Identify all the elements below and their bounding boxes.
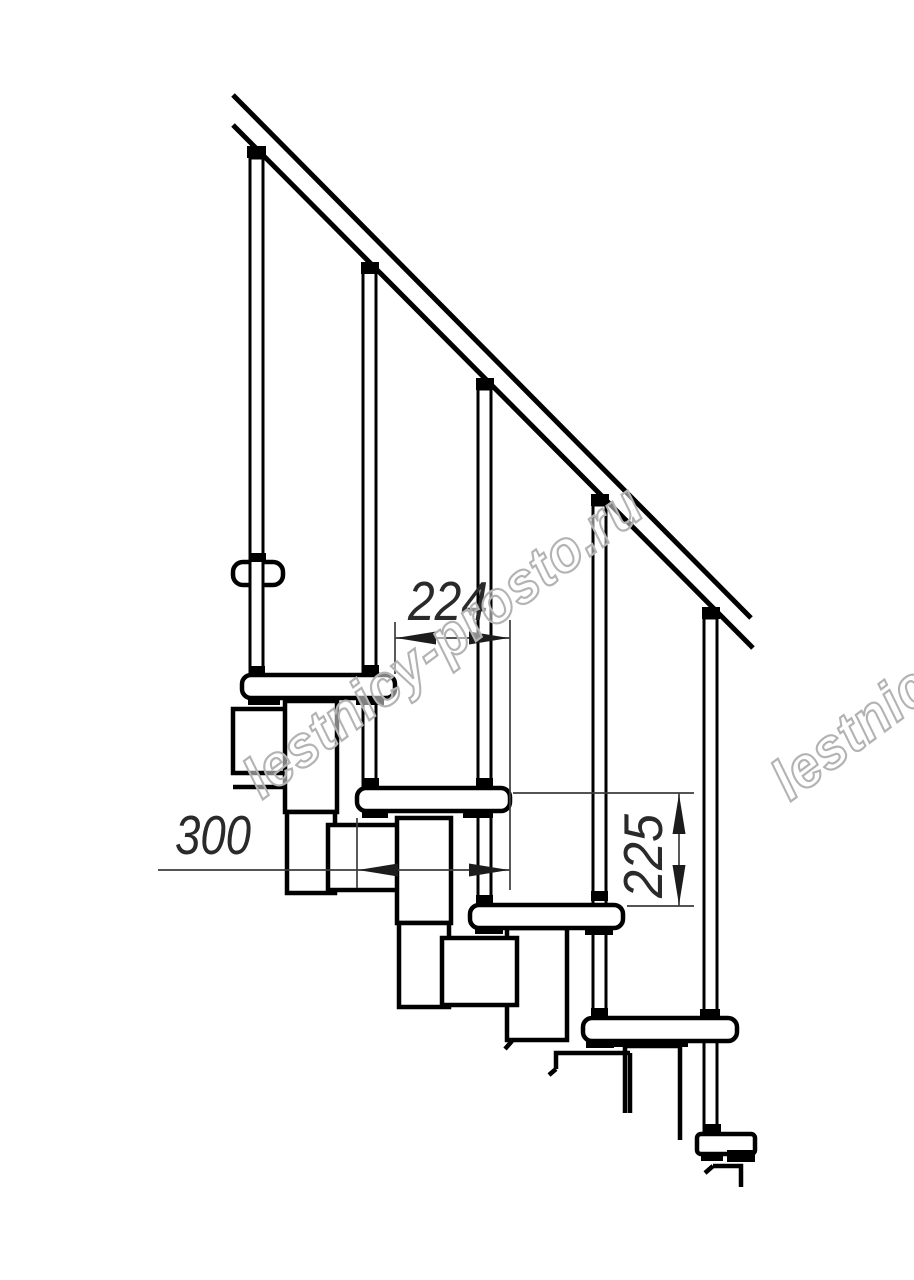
tread-2-clamp-rear xyxy=(362,810,388,818)
tread-4 xyxy=(583,1018,737,1041)
baluster-5 xyxy=(704,618,717,1134)
dim-225-label: 225 xyxy=(612,814,674,899)
baluster-1-foot xyxy=(249,666,265,675)
baluster-1 xyxy=(250,158,263,675)
base-clamp-left xyxy=(701,1152,723,1161)
baluster-3-pass-clamp xyxy=(476,778,493,788)
tread-4-clamp-strip xyxy=(614,1040,688,1047)
baluster-3-foot xyxy=(476,895,493,905)
tread-3-clamp-front xyxy=(585,927,613,935)
tread-3 xyxy=(470,905,623,928)
module-2-clamp-box xyxy=(328,825,403,890)
base-clamp-right xyxy=(727,1150,755,1162)
bracket-collar xyxy=(249,553,266,562)
tread-2 xyxy=(357,788,510,811)
tread-3-clamp-rear xyxy=(475,927,503,934)
baluster-5-pass-clamp xyxy=(700,1009,720,1019)
baluster-4-pass-clamp xyxy=(591,891,608,901)
module-3-clamp-box xyxy=(442,938,517,1005)
baluster-4 xyxy=(593,505,606,1018)
dim-300-label: 300 xyxy=(175,804,251,866)
drawing-page: 224 300 225 lestnicy-prosto.ru lestnicy-… xyxy=(0,0,914,1280)
staircase-drawing: 224 300 225 lestnicy-prosto.ru lestnicy-… xyxy=(0,0,914,1280)
baluster-2-foot xyxy=(362,778,379,788)
tread-1-clamp-rear xyxy=(248,697,280,705)
tread-4-clamp-rear xyxy=(586,1040,614,1048)
baluster-5-foot xyxy=(703,1124,721,1134)
baluster-4-foot xyxy=(591,1008,608,1018)
tread-2-clamp-front xyxy=(463,810,493,818)
